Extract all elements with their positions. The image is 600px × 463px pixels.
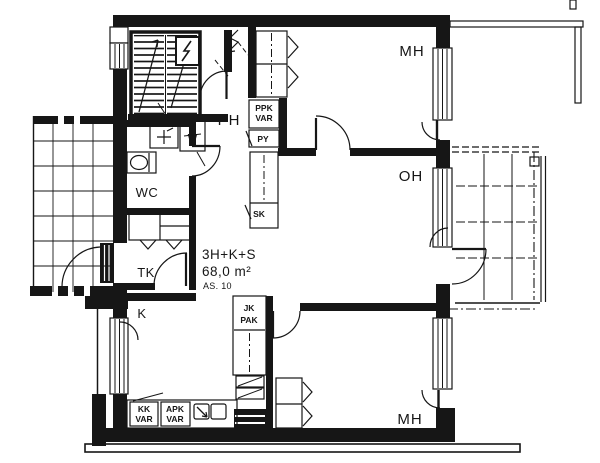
entry-door-arc [200,71,227,98]
closet-label-jk: JK [244,303,256,313]
room-label-k: K [137,306,146,321]
closet-label-apk: APK [166,404,185,414]
hall-mh-door-arc [273,311,300,338]
bedroom-bottom-window [433,318,452,389]
sink-icon [194,404,226,419]
living-room: OH [273,168,486,338]
wc-cistern-fixture [150,126,178,148]
neighbor-unit-walls [450,0,583,103]
kitchen-window [110,318,128,394]
oh-balcony-door-arc [452,249,486,284]
bedroom-bottom: MH [276,378,440,428]
kk-var-cabinet: KK VAR [130,402,158,426]
wc: W WC [127,120,220,215]
stove-icon [236,376,264,399]
apartment-info: 3H+K+S 68,0 m² AS. 10 [202,247,256,291]
tk-closet [129,213,191,249]
room-label-mh-bottom: MH [397,411,422,428]
tk-balcony-door-arc [62,247,100,287]
room-label-wc: WC [136,185,159,200]
room-label-oh: OH [399,168,424,185]
staircase [128,32,228,122]
oven-unit [234,409,266,430]
electrical-shaft [176,37,199,65]
kitchen: JK PAK KK VAR APK VAR [120,293,273,430]
livingroom-window [433,168,452,247]
closet-label-ppk: PPK [255,103,273,113]
floor-plan-drawing: PPK VAR PY SK MH [0,0,600,463]
room-label-tk: TK [137,265,155,280]
bedroom-top-window [433,48,452,120]
tk-door-arc [154,253,187,286]
apartment-area-label: 68,0 m² [202,264,251,279]
tk-room: TK [62,213,196,290]
closet-label-sk: SK [253,209,266,219]
terrace-edge [85,444,520,452]
bedroom-top-door-arc [316,116,350,150]
room-label-mh-top: MH [399,43,424,60]
bedroom-bottom-closet [276,378,312,428]
room-label-ph: PH [218,112,241,129]
closet-label-kk-var: VAR [135,414,152,424]
right-balcony [448,147,546,309]
closet-label-py: PY [257,134,269,144]
fridge-freezer-column: JK PAK [233,296,266,375]
apartment-unit-label: AS. 10 [203,281,232,291]
bedroom-top-closet [256,31,298,97]
hall-closets: PPK VAR PY SK [245,27,287,228]
stairwell-window [110,43,128,69]
closet-label-ppk-var: VAR [255,113,272,123]
right-balcony-grid [456,154,540,300]
closet-label-jk-pak: PAK [240,315,258,325]
apartment-type-label: 3H+K+S [202,247,256,262]
toilet-icon [127,152,156,173]
tk-balcony-door [62,243,114,287]
left-balcony-grid [34,118,113,292]
apk-var-cabinet: APK VAR [161,402,190,426]
floor-plan: PPK VAR PY SK MH [0,0,600,463]
closet-label-kk: KK [138,404,151,414]
closet-label-apk-var: VAR [166,414,183,424]
